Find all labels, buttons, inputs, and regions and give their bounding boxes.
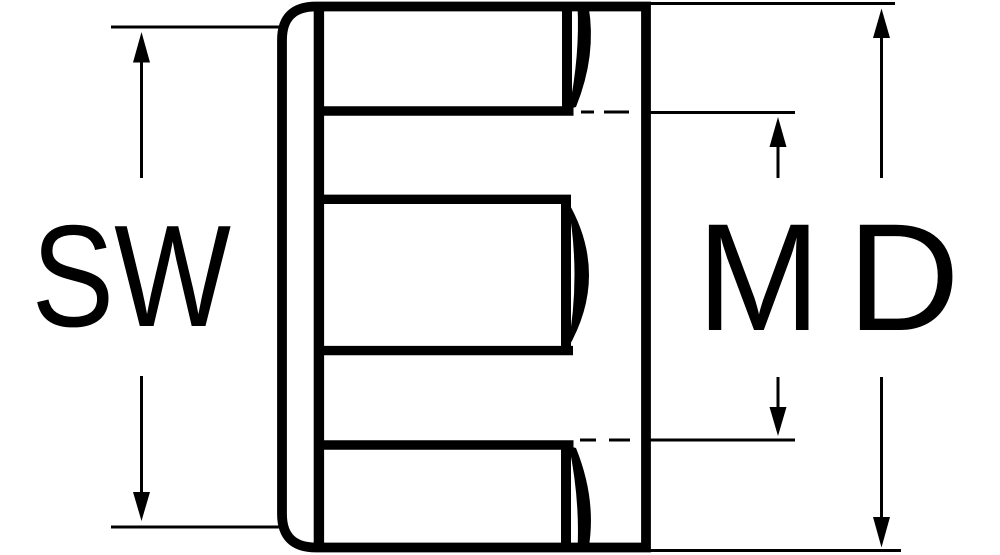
svg-text:M: M	[697, 192, 821, 363]
svg-text:SW: SW	[32, 195, 232, 357]
svg-text:D: D	[847, 192, 960, 363]
